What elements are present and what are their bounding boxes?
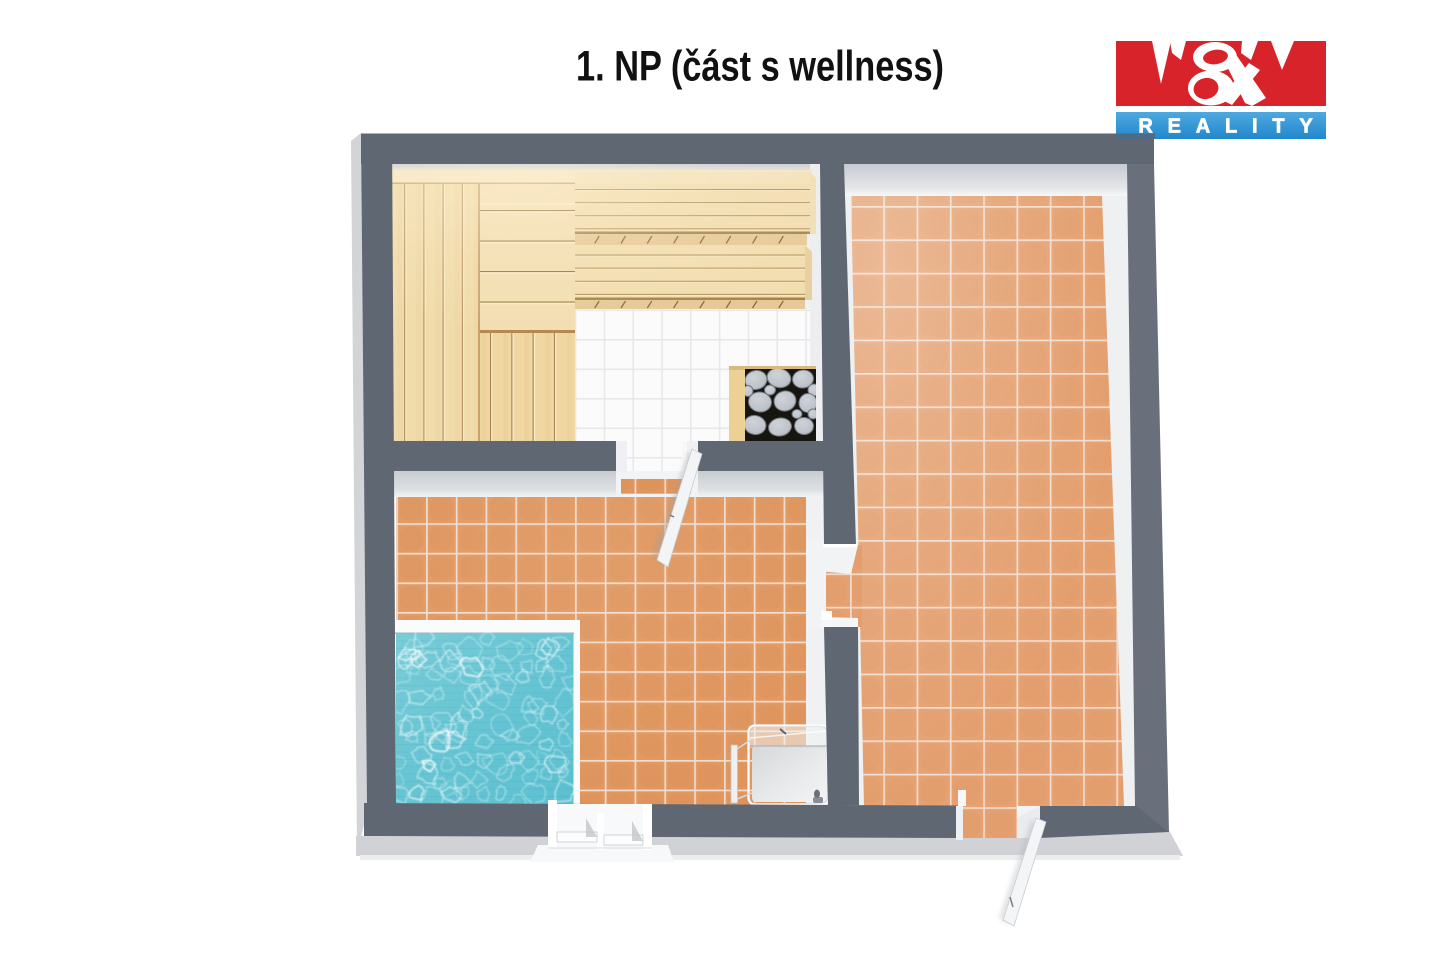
svg-text:REALITY: REALITY (1138, 116, 1327, 138)
svg-text:1. NP (část s wellness): 1. NP (část s wellness) (576, 44, 944, 91)
